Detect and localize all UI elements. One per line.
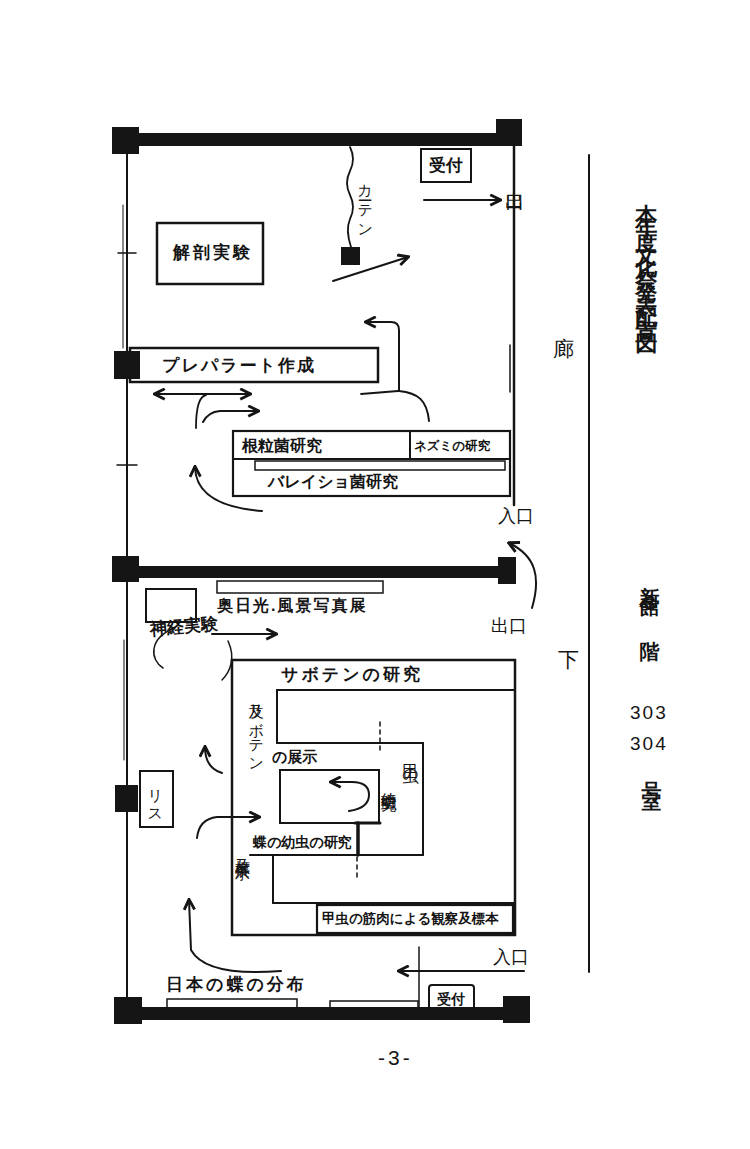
photo-exhibition-label: 奥日光.風景写真展 <box>217 597 367 615</box>
corridor-label-top: 廊 <box>553 337 574 361</box>
specimen-display-label: 及標本展示 <box>234 846 251 856</box>
scanned-floorplan-page: 本年度文化祭発表配置図 新館3階 303 304 号室 廊 下 受付 出口 カー… <box>0 0 750 1149</box>
cactus-display-horizontal-label: の展示 <box>272 748 317 765</box>
room-number-304: 304 <box>630 733 668 755</box>
potato-bacteria-label: バレイショ菌研究 <box>268 473 398 491</box>
cactus-research-label: サボテンの研究 <box>281 665 423 685</box>
bottom-entrance-label: 入口 <box>493 947 529 968</box>
middle-exit-label: 出口 <box>491 616 527 637</box>
butterfly-larva-label: 蝶の幼虫の研究 <box>253 834 352 850</box>
top-exit-label: 出口 <box>504 176 526 186</box>
page-number: -3- <box>378 1046 413 1070</box>
corridor-label-bottom: 下 <box>558 648 579 672</box>
beetle-larva-label-left: 幼虫研究 <box>379 780 397 784</box>
building-floor-label: 新館3階 <box>638 570 661 636</box>
room-number-303: 303 <box>630 702 668 724</box>
room-suffix-label: 号室 <box>640 765 663 783</box>
beetle-muscle-label: 甲虫の筋肉による観察及標本 <box>322 911 499 927</box>
beetle-larva-label-right: 甲虫の <box>401 752 419 779</box>
nodule-bacteria-label: 根粒菌研究 <box>242 437 322 455</box>
top-entrance-label: 入口 <box>498 506 534 527</box>
curtain-label: カーテン <box>357 173 374 232</box>
squirrel-label: リス <box>147 779 164 817</box>
slide-prep-label: プレパラート作成 <box>162 356 316 376</box>
dissection-label: 解剖実験 <box>173 243 253 263</box>
top-reception-label: 受付 <box>429 156 463 176</box>
mouse-research-label: ネズミの研究 <box>414 439 490 453</box>
cactus-display-vertical-label: 及サボテン <box>248 692 265 765</box>
bottom-reception-label: 受付 <box>437 991 465 1007</box>
butterfly-distribution-label: 日本の蝶の分布 <box>166 975 307 995</box>
page-title: 本年度文化祭発表配置図 <box>634 186 659 329</box>
